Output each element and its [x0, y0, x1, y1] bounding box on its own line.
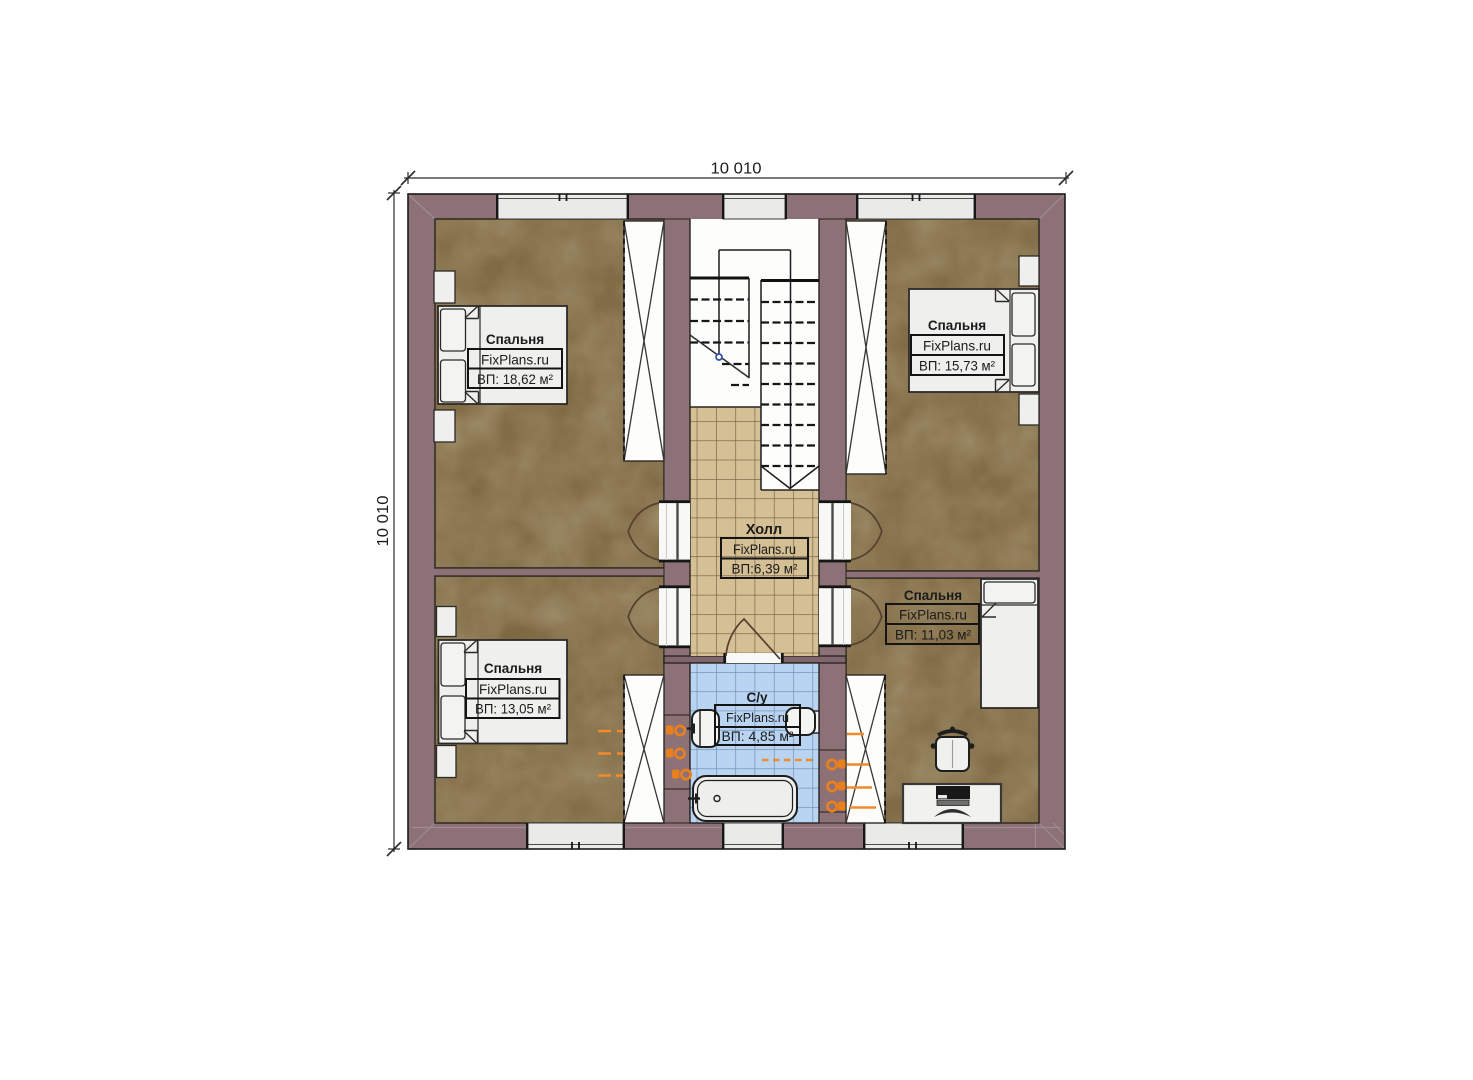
- svg-text:FixPlans.ru: FixPlans.ru: [923, 338, 991, 354]
- svg-text:10 010: 10 010: [711, 161, 762, 178]
- svg-text:ВП:6,39 м²: ВП:6,39 м²: [732, 561, 798, 577]
- svg-text:ВП: 4,85 м²: ВП: 4,85 м²: [722, 729, 795, 744]
- svg-text:FixPlans.ru: FixPlans.ru: [726, 710, 789, 725]
- svg-text:ВП: 18,62 м²: ВП: 18,62 м²: [477, 371, 553, 387]
- svg-text:С/у: С/у: [746, 690, 768, 705]
- svg-text:ВП: 13,05 м²: ВП: 13,05 м²: [475, 701, 551, 717]
- svg-text:10 010: 10 010: [375, 495, 392, 546]
- svg-text:Спальня: Спальня: [928, 318, 986, 333]
- svg-text:FixPlans.ru: FixPlans.ru: [479, 681, 547, 697]
- svg-text:Спальня: Спальня: [486, 332, 544, 347]
- svg-text:Спальня: Спальня: [904, 588, 962, 603]
- svg-text:FixPlans.ru: FixPlans.ru: [733, 542, 796, 557]
- svg-text:FixPlans.ru: FixPlans.ru: [481, 352, 549, 368]
- svg-text:Спальня: Спальня: [484, 661, 542, 676]
- svg-text:Холл: Холл: [746, 522, 782, 538]
- svg-text:ВП: 11,03 м²: ВП: 11,03 м²: [895, 627, 971, 643]
- svg-text:FixPlans.ru: FixPlans.ru: [899, 607, 967, 623]
- svg-text:ВП: 15,73 м²: ВП: 15,73 м²: [919, 358, 995, 374]
